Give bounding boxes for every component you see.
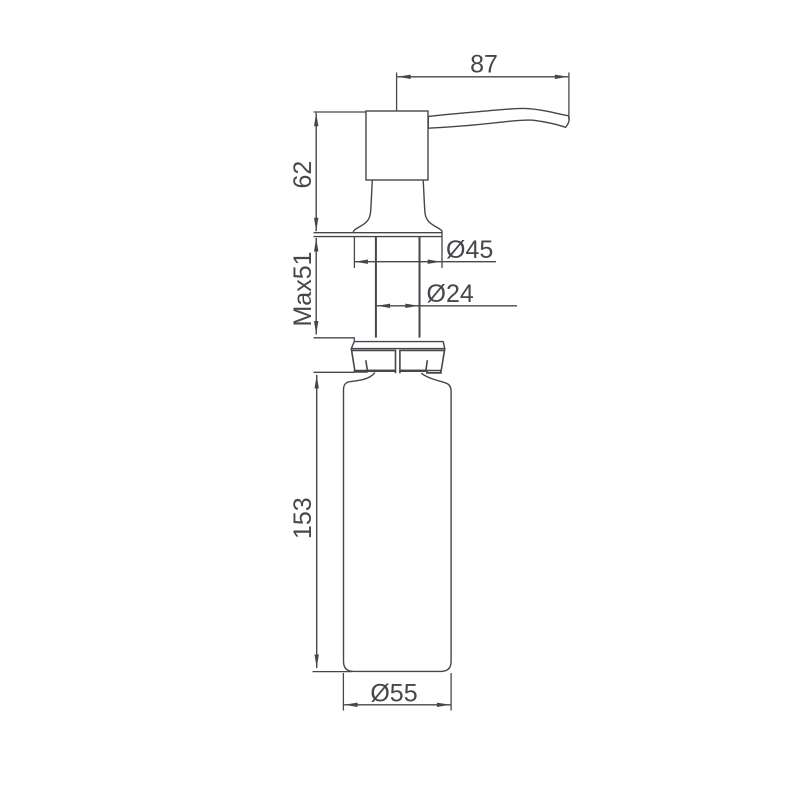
svg-text:Ø55: Ø55	[370, 679, 417, 707]
svg-text:87: 87	[470, 51, 498, 79]
svg-text:Max51: Max51	[289, 251, 317, 326]
svg-text:Ø45: Ø45	[446, 236, 493, 264]
svg-text:62: 62	[289, 161, 317, 189]
svg-text:Ø24: Ø24	[427, 280, 474, 308]
svg-text:153: 153	[289, 497, 317, 539]
